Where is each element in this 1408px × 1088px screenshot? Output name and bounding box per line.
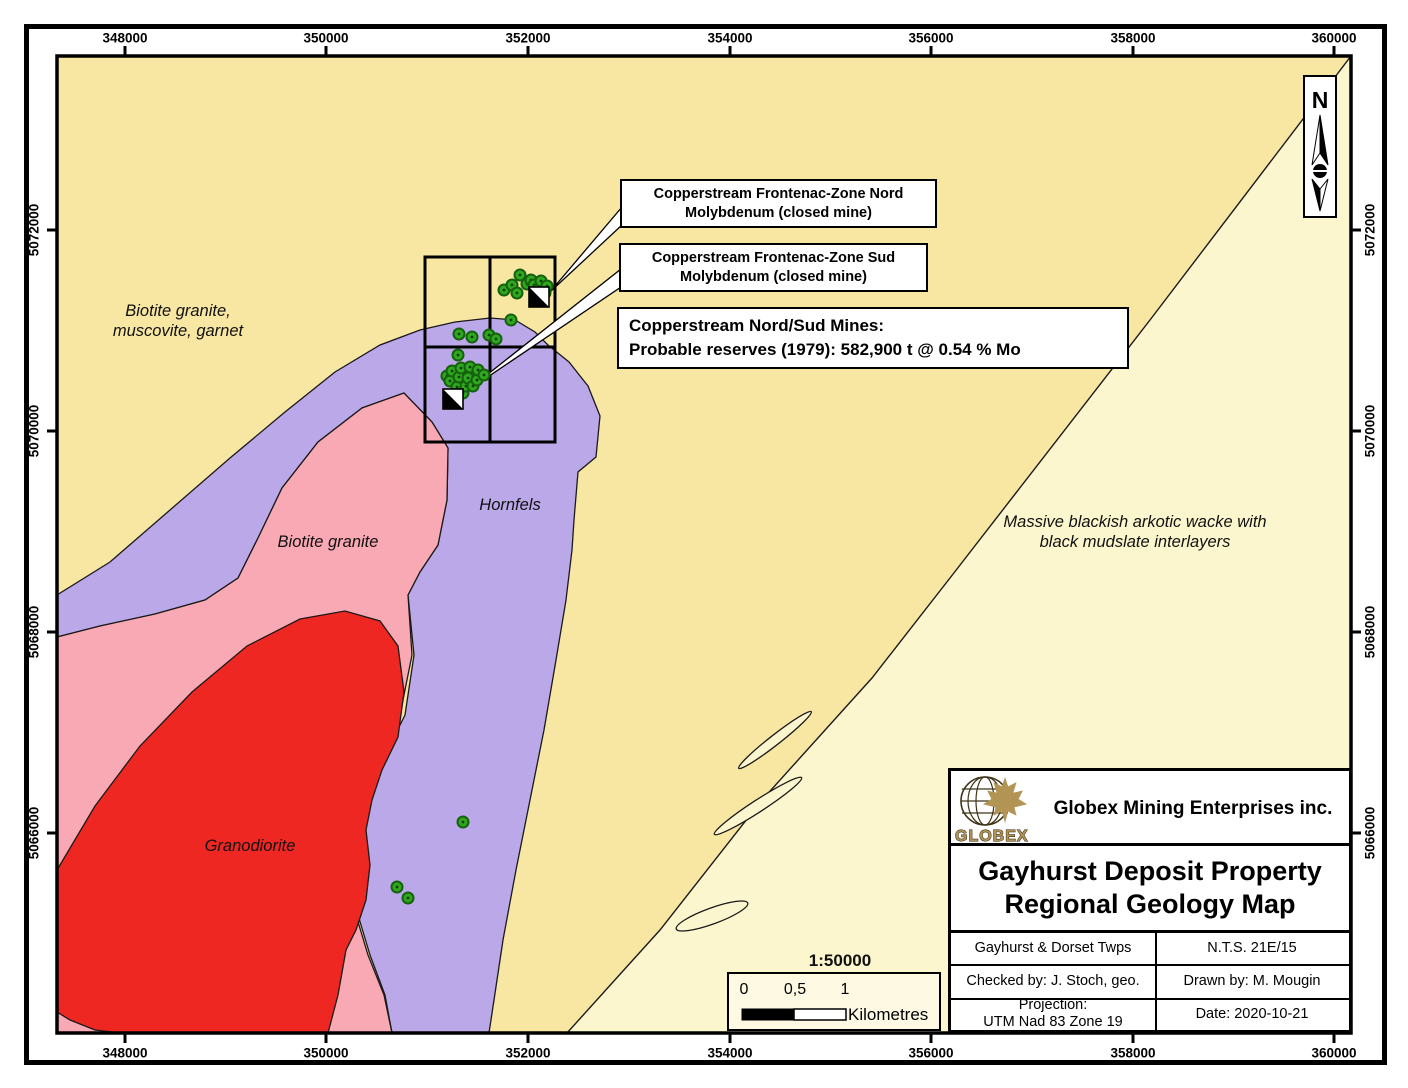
logo-text: GLOBEX: [955, 828, 1029, 844]
axis-label-right-5072000: 5072000: [1363, 204, 1378, 257]
axis-label-left-5066000: 5066000: [27, 807, 42, 860]
title-block-header: GLOBEX Globex Mining Enterprises inc.: [951, 771, 1349, 846]
callout-nord: Copperstream Frontenac-Zone NordMolybden…: [620, 179, 937, 228]
region-label-granite-muscovite-garnet: Biotite granite,muscovite, garnet: [113, 301, 243, 341]
callout-reserves: Copperstream Nord/Sud Mines:Probable res…: [617, 307, 1129, 369]
axis-label-right-5068000: 5068000: [1363, 606, 1378, 659]
company-name: Globex Mining Enterprises inc.: [1039, 771, 1347, 846]
occurrence-dot: [506, 315, 517, 326]
region-label-biotite-granite: Biotite granite: [278, 532, 379, 552]
axis-label-top-352000: 352000: [505, 31, 550, 46]
scale-tick-0: 0: [740, 981, 749, 999]
north-arrow: N: [1303, 75, 1337, 218]
occurrence-dot: [467, 332, 478, 343]
axis-label-top-354000: 354000: [707, 31, 752, 46]
occurrence-dot: [403, 893, 414, 904]
region-label-hornfels: Hornfels: [479, 495, 540, 515]
occurrence-dot: [453, 350, 464, 361]
occurrence-dot: [458, 817, 469, 828]
cell-checked-by: Checked by: J. Stoch, geo.: [951, 964, 1155, 998]
cell-drawn-by: Drawn by: M. Mougin: [1155, 964, 1349, 998]
axis-label-right-5070000: 5070000: [1363, 405, 1378, 458]
map-title: Gayhurst Deposit Property Regional Geolo…: [951, 846, 1349, 933]
title-block: GLOBEX Globex Mining Enterprises inc. Ga…: [948, 768, 1352, 1033]
cell-date: Date: 2020-10-21: [1155, 998, 1349, 1030]
occurrence-dot: [392, 882, 403, 893]
map-title-line1: Gayhurst Deposit Property: [978, 855, 1322, 888]
compass-needle-icon: [1305, 107, 1335, 217]
scale-bar: 0 0,5 1 Kilometres: [727, 972, 941, 1031]
region-label-granodiorite: Granodiorite: [205, 836, 296, 856]
axis-label-bottom-350000: 350000: [303, 1046, 348, 1061]
occurrence-dot: [512, 288, 523, 299]
map-title-line2: Regional Geology Map: [1004, 888, 1295, 921]
scale-unit: Kilometres: [848, 1005, 928, 1025]
axis-label-left-5068000: 5068000: [27, 606, 42, 659]
axis-label-top-348000: 348000: [102, 31, 147, 46]
axis-label-bottom-356000: 356000: [908, 1046, 953, 1061]
geology-map-sheet: 3480003500003520003540003560003580003600…: [0, 0, 1408, 1088]
axis-label-left-5072000: 5072000: [27, 204, 42, 257]
region-label-wacke: Massive blackish arkotic wacke withblack…: [1003, 512, 1266, 552]
closed-mine-icon: [443, 389, 463, 409]
closed-mine-icon: [529, 287, 549, 307]
occurrence-dot: [491, 334, 502, 345]
axis-label-right-5066000: 5066000: [1363, 807, 1378, 860]
axis-label-top-360000: 360000: [1311, 31, 1356, 46]
scale-tick-1: 1: [841, 981, 850, 999]
axis-label-top-358000: 358000: [1110, 31, 1155, 46]
axis-label-bottom-348000: 348000: [102, 1046, 147, 1061]
cell-township: Gayhurst & Dorset Twps: [951, 933, 1155, 964]
axis-label-left-5070000: 5070000: [27, 405, 42, 458]
scale-bar-graphic: [741, 1007, 851, 1023]
title-block-grid: Gayhurst & Dorset Twps N.T.S. 21E/15 Che…: [951, 933, 1349, 1030]
axis-label-top-350000: 350000: [303, 31, 348, 46]
callout-sud: Copperstream Frontenac-Zone SudMolybdenu…: [619, 243, 928, 292]
scale-ratio: 1:50000: [809, 951, 871, 971]
axis-label-bottom-352000: 352000: [505, 1046, 550, 1061]
axis-label-bottom-360000: 360000: [1311, 1046, 1356, 1061]
scale-tick-0-5: 0,5: [784, 981, 806, 999]
cell-projection: Projection: UTM Nad 83 Zone 19: [951, 998, 1155, 1030]
occurrence-dot: [454, 329, 465, 340]
axis-label-top-356000: 356000: [908, 31, 953, 46]
globex-logo: GLOBEX: [953, 773, 1039, 844]
axis-label-bottom-354000: 354000: [707, 1046, 752, 1061]
cell-nts: N.T.S. 21E/15: [1155, 933, 1349, 964]
axis-label-bottom-358000: 358000: [1110, 1046, 1155, 1061]
occurrence-dot: [479, 370, 490, 381]
